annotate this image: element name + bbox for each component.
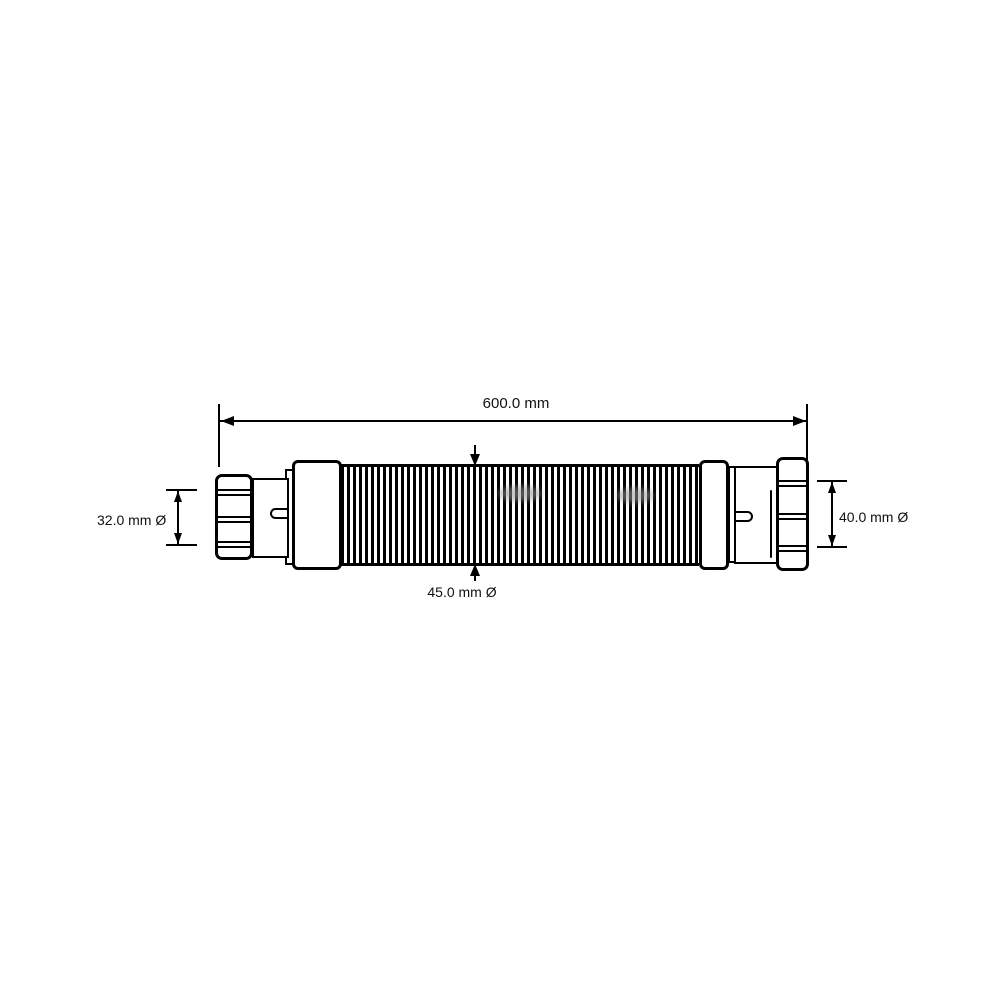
hose-diameter-stem-bottom bbox=[474, 574, 476, 581]
right-diameter-arrow-up-icon bbox=[828, 482, 836, 493]
left-diameter-arrow-up-icon bbox=[174, 491, 182, 502]
right-washer-line bbox=[770, 490, 772, 558]
left-retainer-pin bbox=[270, 508, 289, 519]
length-extension-line-right bbox=[806, 404, 808, 460]
left-diameter-tick-bottom bbox=[166, 544, 197, 546]
overall-length-label: 600.0 mm bbox=[430, 395, 602, 413]
right-diameter-label: 40.0 mm Ø bbox=[839, 508, 908, 526]
hose-shading-left bbox=[498, 486, 542, 501]
hose-shading-right bbox=[616, 488, 654, 503]
left-diameter-label: 32.0 mm Ø bbox=[97, 511, 166, 529]
left-nut-rib bbox=[218, 541, 250, 548]
left-collar bbox=[292, 460, 342, 570]
right-diameter-tick-bottom bbox=[817, 546, 847, 548]
length-dimension-line bbox=[220, 420, 806, 422]
corrugated-hose bbox=[341, 464, 699, 566]
left-diameter-arrow-down-icon bbox=[174, 533, 182, 544]
right-nut-rib bbox=[779, 480, 806, 487]
technical-drawing-canvas: 600.0 mm 32.0 mm Ø 40.0 mm Ø 45.0 mm Ø bbox=[0, 0, 1000, 1000]
hose-diameter-label: 45.0 mm Ø bbox=[426, 583, 498, 601]
left-nut-rib bbox=[218, 516, 250, 523]
right-diameter-arrow-down-icon bbox=[828, 535, 836, 546]
length-arrow-right-icon bbox=[793, 416, 806, 426]
hose-diameter-arrow-down-icon bbox=[470, 454, 480, 466]
right-nut-rib bbox=[779, 513, 806, 520]
right-retainer-pin bbox=[734, 511, 753, 522]
right-collar bbox=[699, 460, 729, 570]
right-nut-rib bbox=[779, 545, 806, 552]
right-compression-nut bbox=[776, 457, 809, 571]
left-nut-rib bbox=[218, 489, 250, 496]
length-extension-line-left bbox=[218, 404, 220, 467]
length-arrow-left-icon bbox=[221, 416, 234, 426]
left-compression-nut bbox=[215, 474, 253, 560]
